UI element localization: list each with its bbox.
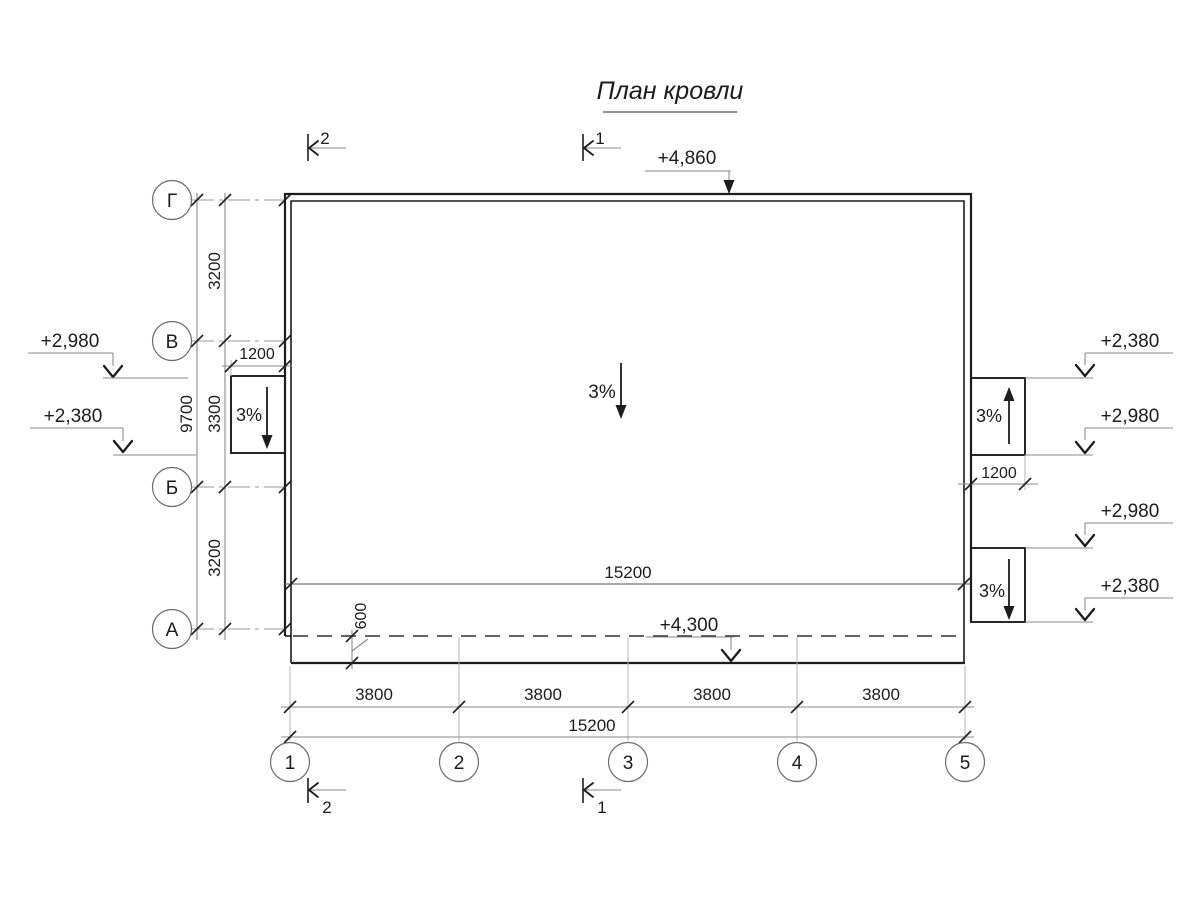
- section-2-bottom-label: 2: [322, 798, 331, 817]
- left-ledge-slope-label: 3%: [236, 405, 262, 425]
- canopy-depth-label: 600: [353, 603, 370, 630]
- col-spacing-4-label: 3800: [862, 685, 900, 704]
- page-title: План кровли: [597, 77, 744, 105]
- row-total-label: 9700: [177, 395, 196, 433]
- axis-label-b: Б: [166, 478, 178, 499]
- left-ledge-width-label: 1200: [239, 346, 275, 363]
- section-1-top-label: 1: [595, 129, 604, 148]
- roof-width-label: 15200: [604, 563, 651, 582]
- right-elevation-4-label: +2,380: [1101, 576, 1160, 597]
- right-top-ledge: 3% 1200: [958, 378, 1093, 490]
- col-total-label: 15200: [568, 716, 615, 735]
- right-elevation-2-label: +2,980: [1101, 406, 1160, 427]
- col-spacing-1-label: 3800: [355, 685, 393, 704]
- section-mark-2-top: 2: [308, 129, 346, 161]
- canopy-elevation: +4,300: [646, 615, 740, 661]
- slope-arrow-down-icon: [1004, 606, 1015, 620]
- slope-arrow-up-icon: [1004, 387, 1015, 401]
- parapet-top-elevation-label: +4,860: [658, 148, 717, 169]
- right-elevation-4: +2,380: [1076, 576, 1173, 620]
- elevation-arrow-down-icon: [722, 650, 740, 661]
- drawing-title-block: План кровли: [597, 77, 744, 112]
- drawing-canvas: План кровли 15200: [0, 0, 1200, 900]
- axis-label-5: 5: [960, 753, 971, 774]
- row-spacing-3-label: 3200: [205, 539, 224, 577]
- section-1-bottom-label: 1: [597, 798, 606, 817]
- right-elevation-1-label: +2,380: [1101, 331, 1160, 352]
- left-ledge: 3% 1200: [222, 346, 292, 453]
- left-upper-elevation-label: +2,980: [41, 331, 100, 352]
- axis-label-v: В: [166, 332, 179, 353]
- axis-label-g: Г: [167, 191, 177, 212]
- canopy-elevation-label: +4,300: [660, 615, 719, 636]
- slope-arrow-down-icon: [616, 405, 627, 419]
- right-top-ledge-slope-label: 3%: [976, 406, 1002, 426]
- right-bottom-ledge: 3%: [971, 548, 1093, 622]
- section-2-top-label: 2: [320, 129, 329, 148]
- right-elevation-3: +2,980: [1076, 501, 1173, 546]
- elevation-arrow-down-icon: [1076, 442, 1094, 453]
- right-elevation-3-label: +2,980: [1101, 501, 1160, 522]
- elevation-arrow-down-icon: [1076, 365, 1094, 376]
- col-spacing-3-label: 3800: [693, 685, 731, 704]
- roof-plan-drawing: План кровли 15200: [0, 0, 1200, 900]
- axis-label-3: 3: [623, 753, 634, 774]
- section-mark-1-top: 1: [583, 129, 621, 161]
- main-roof-slope: 3%: [588, 363, 626, 419]
- parapet-top-elevation: +4,860: [645, 148, 735, 194]
- main-slope-label: 3%: [588, 382, 616, 403]
- col-spacing-2-label: 3800: [524, 685, 562, 704]
- left-elevation-upper: +2,980: [28, 331, 188, 378]
- axis-label-4: 4: [792, 753, 803, 774]
- right-bottom-ledge-slope-label: 3%: [979, 581, 1005, 601]
- left-elevation-lower: +2,380: [30, 406, 196, 455]
- parapet-inner-line: [291, 201, 964, 663]
- axis-label-a: А: [166, 620, 179, 641]
- axis-label-1: 1: [285, 753, 296, 774]
- section-mark-2-bottom: 2: [308, 778, 346, 817]
- left-lower-elevation-label: +2,380: [44, 406, 103, 427]
- elevation-arrow-down-icon: [724, 180, 735, 194]
- building-outline: [285, 194, 971, 663]
- right-elevation-2: +2,980: [1076, 406, 1173, 453]
- row-spacing-1-label: 3200: [205, 252, 224, 290]
- elevation-arrow-down-icon: [1076, 535, 1094, 546]
- elevation-arrow-down-icon: [104, 366, 122, 377]
- left-dimension-chain: 3200 3300 3200 9700: [177, 193, 291, 640]
- elevation-arrow-down-icon: [114, 441, 132, 452]
- elevation-arrow-down-icon: [1076, 609, 1094, 620]
- right-elevation-1: +2,380: [1076, 331, 1173, 376]
- roof-width-dimension: 15200: [285, 563, 971, 590]
- row-spacing-2-label: 3300: [205, 395, 224, 433]
- slope-arrow-down-icon: [262, 435, 273, 449]
- axis-label-2: 2: [454, 753, 465, 774]
- right-ledge-width-label: 1200: [981, 465, 1017, 482]
- section-mark-1-bottom: 1: [583, 778, 621, 817]
- col-axis-bubbles: 1 2 3 4 5: [271, 743, 985, 782]
